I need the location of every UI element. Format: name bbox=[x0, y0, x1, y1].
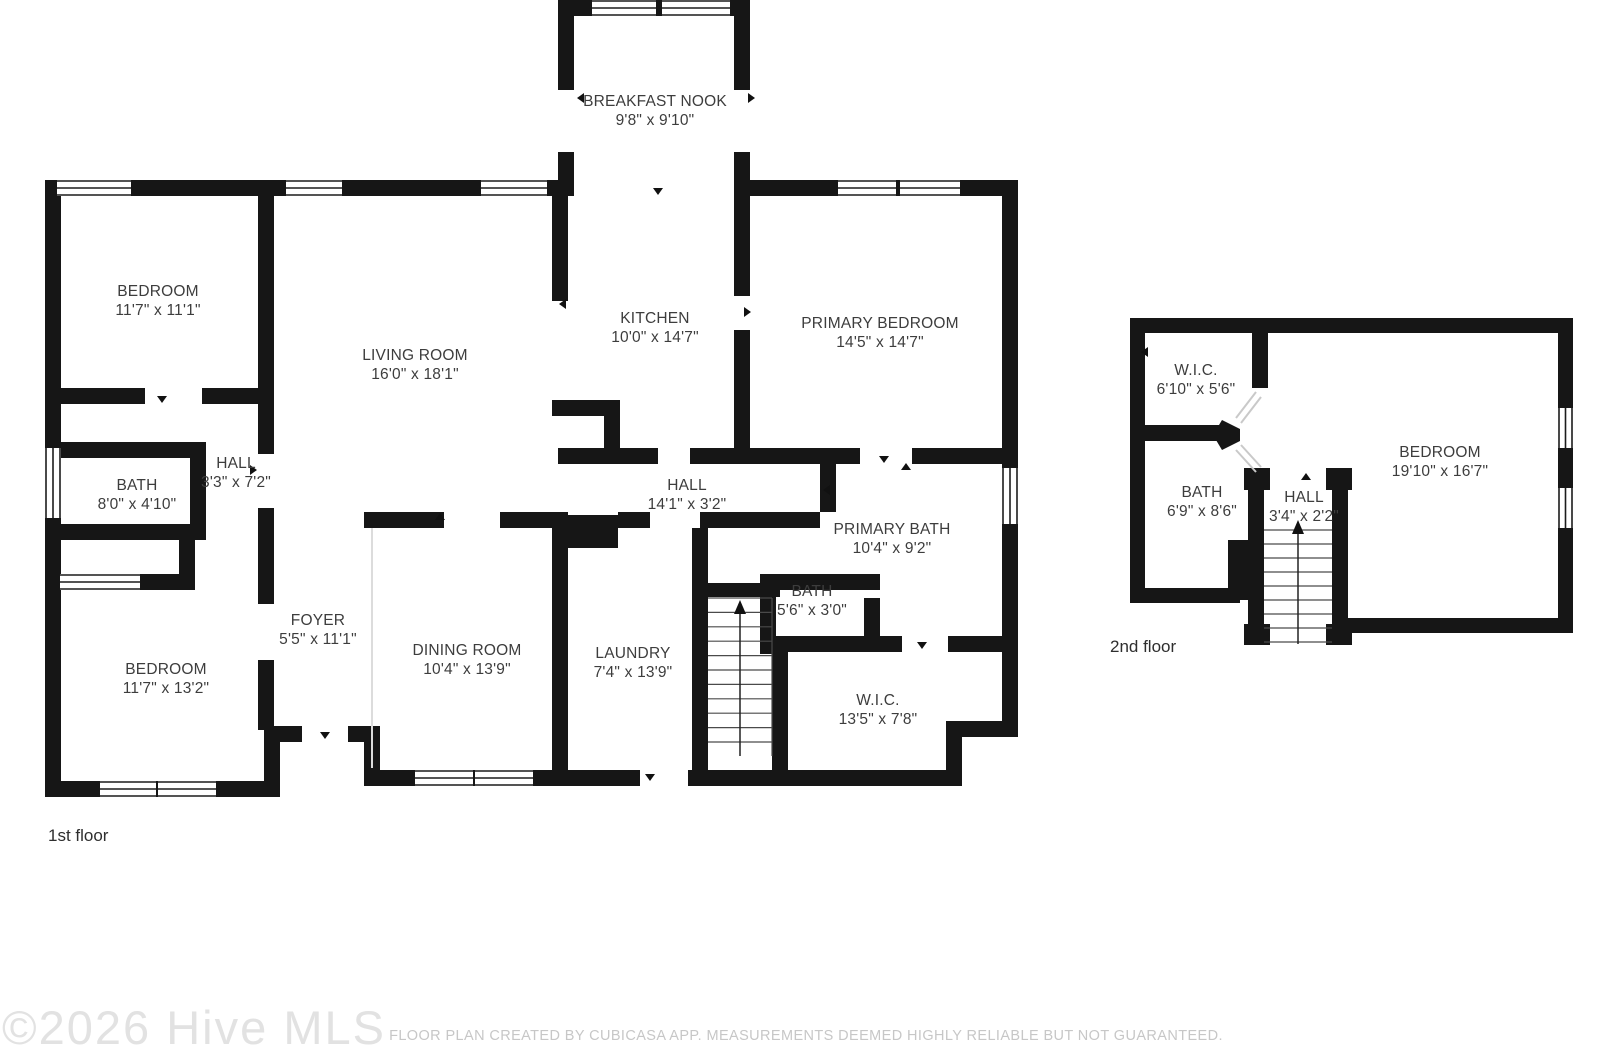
second-floor-label: 2nd floor bbox=[1110, 637, 1176, 657]
room-dims: 16'0" x 18'1" bbox=[362, 365, 468, 384]
room-label-primary-bath: PRIMARY BATH 10'4" x 9'2" bbox=[834, 520, 951, 558]
room-label-bedroom-bottom-left: BEDROOM 11'7" x 13'2" bbox=[123, 660, 209, 698]
room-name: BEDROOM bbox=[1392, 443, 1488, 462]
room-dims: 14'1" x 3'2" bbox=[648, 495, 727, 514]
room-name: BREAKFAST NOOK bbox=[583, 92, 727, 111]
room-dims: 14'5" x 14'7" bbox=[801, 333, 958, 352]
room-name: W.I.C. bbox=[839, 691, 918, 710]
room-label-bath-second: BATH 6'9" x 8'6" bbox=[1167, 483, 1237, 521]
room-label-bedroom-second: BEDROOM 19'10" x 16'7" bbox=[1392, 443, 1488, 481]
room-dims: 19'10" x 16'7" bbox=[1392, 462, 1488, 481]
room-dims: 6'10" x 5'6" bbox=[1157, 380, 1236, 399]
room-name: HALL bbox=[1269, 488, 1339, 507]
room-label-hall-left: HALL 3'3" x 7'2" bbox=[201, 454, 271, 492]
mls-watermark: ©2026 Hive MLS bbox=[2, 1000, 386, 1055]
windows bbox=[45, 0, 1573, 797]
disclaimer-text: FLOOR PLAN CREATED BY CUBICASA APP. MEAS… bbox=[389, 1028, 1223, 1044]
room-name: HALL bbox=[201, 454, 271, 473]
room-label-primary-bedroom: PRIMARY BEDROOM 14'5" x 14'7" bbox=[801, 314, 958, 352]
room-dims: 11'7" x 13'2" bbox=[123, 679, 209, 698]
room-label-wic-first: W.I.C. 13'5" x 7'8" bbox=[839, 691, 918, 729]
room-dims: 8'0" x 4'10" bbox=[98, 495, 177, 514]
room-dims: 10'4" x 9'2" bbox=[834, 539, 951, 558]
first-floor-label: 1st floor bbox=[48, 826, 108, 846]
room-dims: 10'4" x 13'9" bbox=[413, 660, 522, 679]
room-dims: 7'4" x 13'9" bbox=[594, 663, 673, 682]
room-label-wic-second: W.I.C. 6'10" x 5'6" bbox=[1157, 361, 1236, 399]
room-label-dining-room: DINING ROOM 10'4" x 13'9" bbox=[413, 641, 522, 679]
stairs-second-floor bbox=[1264, 520, 1332, 644]
room-label-breakfast-nook: BREAKFAST NOOK 9'8" x 9'10" bbox=[583, 92, 727, 130]
walls bbox=[45, 0, 1573, 797]
room-dims: 9'8" x 9'10" bbox=[583, 111, 727, 130]
room-label-foyer: FOYER 5'5" x 11'1" bbox=[279, 611, 357, 649]
floor-plan-graphics bbox=[0, 0, 1598, 1063]
room-name: KITCHEN bbox=[611, 309, 699, 328]
room-name: HALL bbox=[648, 476, 727, 495]
room-name: BEDROOM bbox=[123, 660, 209, 679]
room-label-bedroom-top-left: BEDROOM 11'7" x 11'1" bbox=[115, 282, 200, 320]
room-label-living-room: LIVING ROOM 16'0" x 18'1" bbox=[362, 346, 468, 384]
room-dims: 3'3" x 7'2" bbox=[201, 473, 271, 492]
room-name: BATH bbox=[1167, 483, 1237, 502]
room-dims: 5'6" x 3'0" bbox=[777, 601, 847, 620]
room-label-bath-left: BATH 8'0" x 4'10" bbox=[98, 476, 177, 514]
room-name: PRIMARY BATH bbox=[834, 520, 951, 539]
floor-plan-canvas: BREAKFAST NOOK 9'8" x 9'10" BEDROOM 11'7… bbox=[0, 0, 1598, 1063]
room-dims: 10'0" x 14'7" bbox=[611, 328, 699, 347]
room-label-kitchen: KITCHEN 10'0" x 14'7" bbox=[611, 309, 699, 347]
room-dims: 13'5" x 7'8" bbox=[839, 710, 918, 729]
room-dims: 6'9" x 8'6" bbox=[1167, 502, 1237, 521]
room-name: W.I.C. bbox=[1157, 361, 1236, 380]
room-label-laundry: LAUNDRY 7'4" x 13'9" bbox=[594, 644, 673, 682]
room-dims: 5'5" x 11'1" bbox=[279, 630, 357, 649]
room-dims: 11'7" x 11'1" bbox=[115, 301, 200, 320]
room-name: FOYER bbox=[279, 611, 357, 630]
room-name: LAUNDRY bbox=[594, 644, 673, 663]
room-name: BATH bbox=[777, 582, 847, 601]
room-name: BEDROOM bbox=[115, 282, 200, 301]
room-name: DINING ROOM bbox=[413, 641, 522, 660]
room-label-bath-small: BATH 5'6" x 3'0" bbox=[777, 582, 847, 620]
room-label-hall-second: HALL 3'4" x 2'2" bbox=[1269, 488, 1339, 526]
room-label-hall-center: HALL 14'1" x 3'2" bbox=[648, 476, 727, 514]
room-name: PRIMARY BEDROOM bbox=[801, 314, 958, 333]
room-name: BATH bbox=[98, 476, 177, 495]
room-name: LIVING ROOM bbox=[362, 346, 468, 365]
room-dims: 3'4" x 2'2" bbox=[1269, 507, 1339, 526]
